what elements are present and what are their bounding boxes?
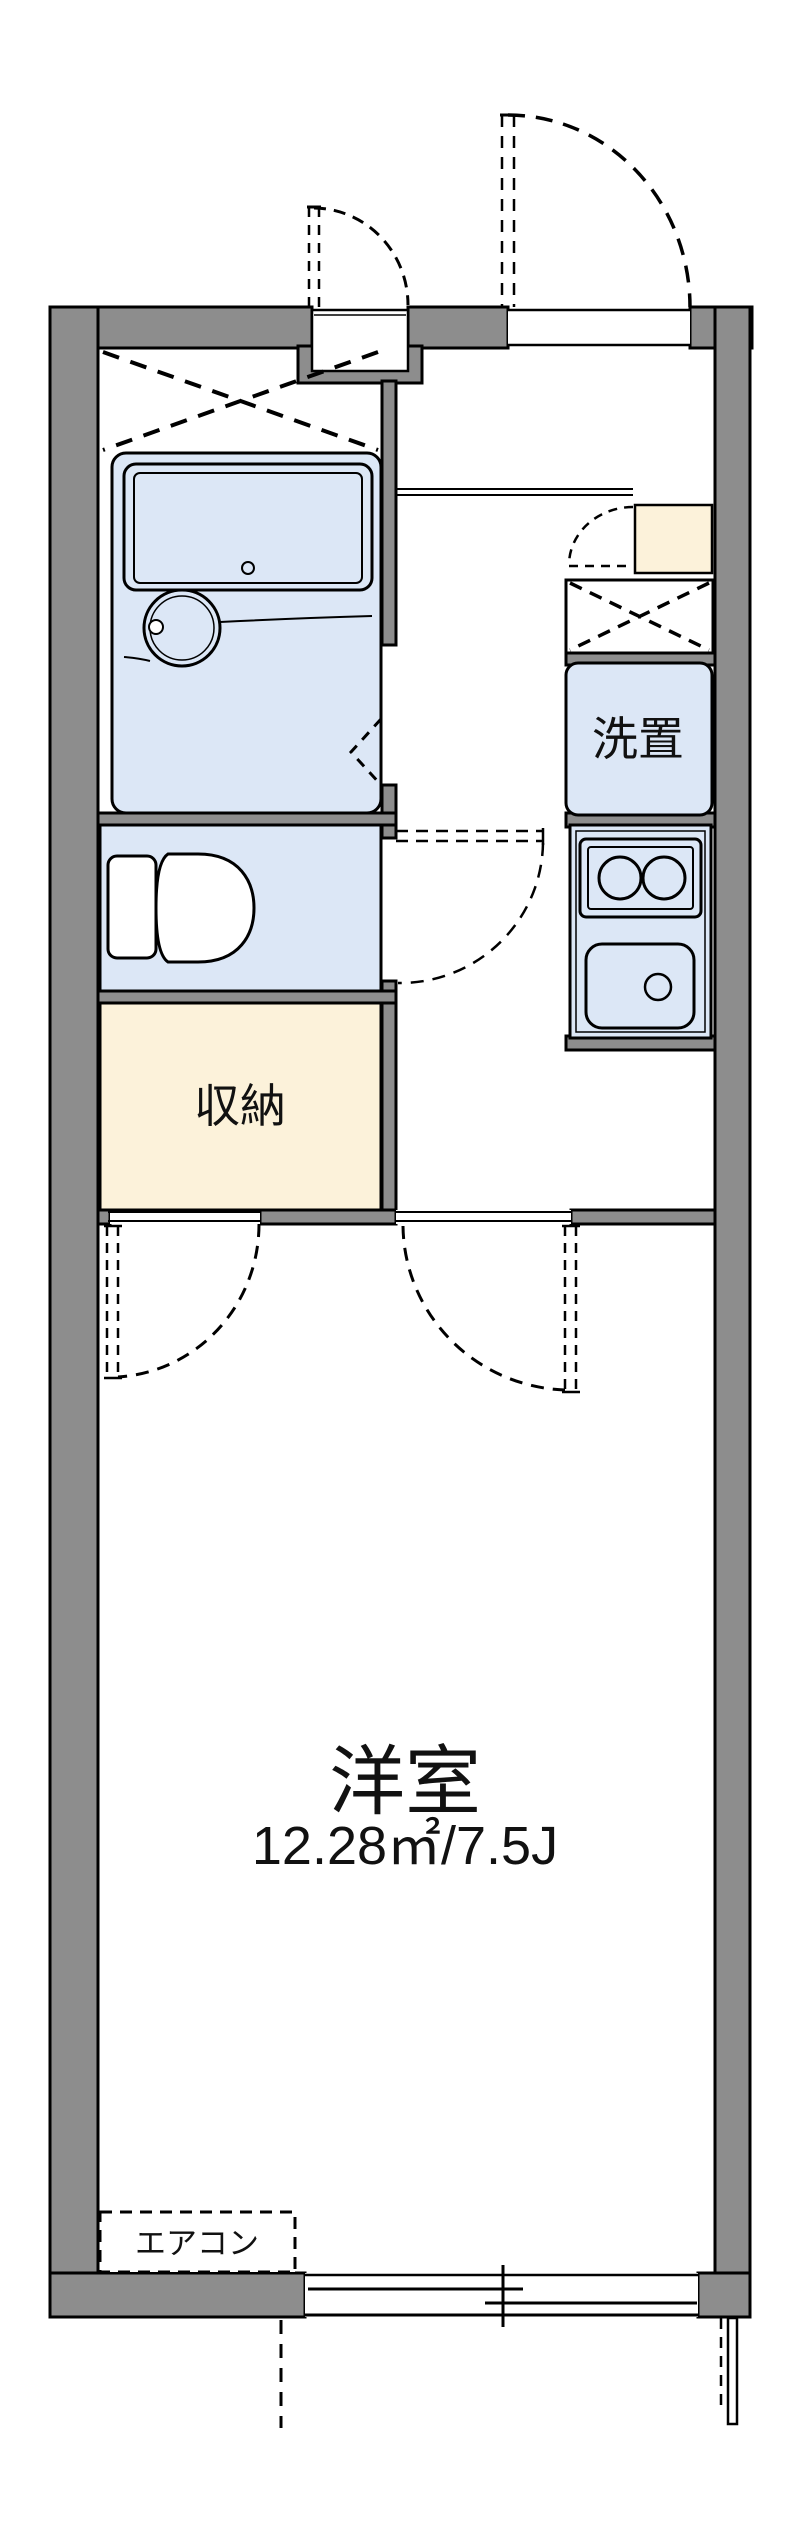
service-opening	[312, 310, 408, 371]
door-swing-arc-icon	[118, 1224, 259, 1377]
door-swing-arc-icon	[508, 115, 690, 307]
door-swing-arc-icon	[403, 1226, 565, 1390]
wall-room-top-c	[571, 1210, 715, 1224]
entrance-door	[500, 115, 690, 307]
aircon-label: エアコン	[135, 2226, 259, 2261]
wall-room-top-b	[260, 1210, 396, 1224]
entry-hall	[396, 489, 713, 653]
balcony-partition-lines	[281, 2318, 737, 2428]
toilet-door	[396, 828, 543, 983]
door-swing-arc-icon	[398, 843, 543, 983]
shoe-cabinet-door-arc-icon	[569, 507, 633, 566]
crossed-area-icon	[103, 352, 378, 450]
kitchen-counter	[570, 825, 711, 1038]
wall-column-storage	[382, 981, 396, 1212]
wall-right	[715, 307, 750, 2317]
drain-pipe	[728, 2318, 737, 2424]
wall-bath-toilet	[98, 813, 396, 825]
wall-bottom-left	[50, 2273, 305, 2317]
wall-left	[50, 307, 98, 2317]
western-room-area: 12.28㎡/7.5J	[252, 1816, 558, 1876]
toilet-room	[100, 825, 381, 991]
western-room: 洋室 12.28㎡/7.5J エアコン	[100, 1740, 558, 2272]
floor-plan: 収納 洗置	[0, 0, 800, 2539]
wall-top-mid	[408, 307, 508, 348]
toilet-icon	[108, 854, 254, 962]
laundry-label: 洗置	[592, 713, 684, 765]
wall-toilet-storage	[98, 991, 396, 1003]
western-room-label: 洋室	[329, 1740, 481, 1825]
kitchen	[570, 825, 711, 1038]
crossed-box-icon	[566, 580, 713, 653]
entrance-opening	[508, 309, 690, 346]
bathroom	[103, 352, 381, 813]
service-door	[307, 207, 408, 307]
shoe-cabinet	[635, 505, 712, 573]
room-door	[403, 1226, 580, 1392]
laundry-space: 洗置	[566, 663, 712, 815]
wall-bottom-right	[698, 2273, 750, 2317]
door-swing-arc-icon	[314, 208, 408, 305]
wall-column-bath	[382, 381, 396, 645]
aircon-box: エアコン	[100, 2212, 295, 2272]
storage-door	[104, 1224, 259, 1378]
storage-label: 収納	[194, 1080, 286, 1132]
sliding-window-icon	[305, 2265, 698, 2327]
storage-room: 収納	[100, 1003, 381, 1210]
